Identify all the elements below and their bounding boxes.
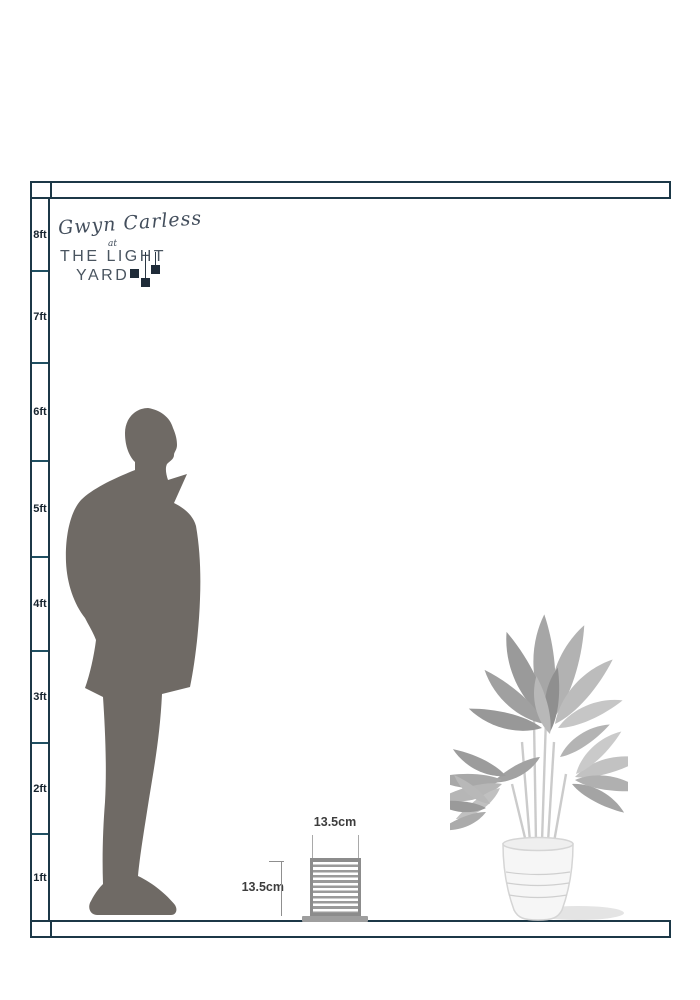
ruler-segment: 4ft	[32, 556, 48, 650]
ruler-segment: 7ft	[32, 270, 48, 362]
width-dimension-label: 13.5cm	[305, 815, 365, 829]
ruler-label-2ft: 2ft	[33, 783, 46, 795]
ruler-label-4ft: 4ft	[33, 598, 46, 610]
brand-line1: THE LIGHT	[60, 248, 166, 266]
potted-plant-illustration	[450, 592, 628, 922]
size-guide-diagram: 8ft 7ft 6ft 5ft 4ft 3ft 2ft 1ft Gwyn Car…	[0, 0, 700, 1000]
frame-top-bar-divider	[50, 183, 52, 197]
ruler-label-7ft: 7ft	[33, 311, 46, 323]
man-silhouette-illustration	[64, 406, 206, 922]
brand-logo: Gwyn Carless at THE LIGHT YARD	[56, 210, 206, 300]
pendant-light-icon	[151, 265, 160, 274]
plant-leaves	[450, 614, 628, 834]
louvered-light-base	[302, 916, 368, 922]
frame-bottom-bar	[30, 920, 671, 938]
ruler-label-6ft: 6ft	[33, 406, 46, 418]
louvered-light-product	[310, 858, 361, 916]
ruler-label-1ft: 1ft	[33, 872, 46, 884]
height-ruler: 8ft 7ft 6ft 5ft 4ft 3ft 2ft 1ft	[30, 199, 50, 920]
pendant-light-icon	[130, 269, 139, 278]
ruler-segment: 5ft	[32, 460, 48, 556]
ruler-segment: 8ft	[32, 199, 48, 270]
ruler-label-8ft: 8ft	[33, 229, 46, 241]
brand-script-name: Gwyn Carless	[57, 207, 208, 239]
ruler-label-3ft: 3ft	[33, 691, 46, 703]
dimension-extension-line	[358, 835, 359, 858]
height-dimension-label: 13.5cm	[232, 880, 284, 894]
brand-line2: YARD	[76, 267, 129, 285]
pendant-light-icon	[145, 252, 146, 278]
ruler-segment: 1ft	[32, 833, 48, 920]
dimension-line	[281, 861, 282, 916]
ruler-segment: 6ft	[32, 362, 48, 460]
frame-top-bar	[30, 181, 671, 199]
pendant-light-icon	[155, 252, 156, 265]
ruler-segment: 3ft	[32, 650, 48, 742]
dimension-extension-line	[312, 835, 313, 858]
pendant-light-icon	[141, 278, 150, 287]
ruler-label-5ft: 5ft	[33, 503, 46, 515]
frame-bottom-bar-divider	[50, 922, 52, 936]
ruler-segment: 2ft	[32, 742, 48, 833]
